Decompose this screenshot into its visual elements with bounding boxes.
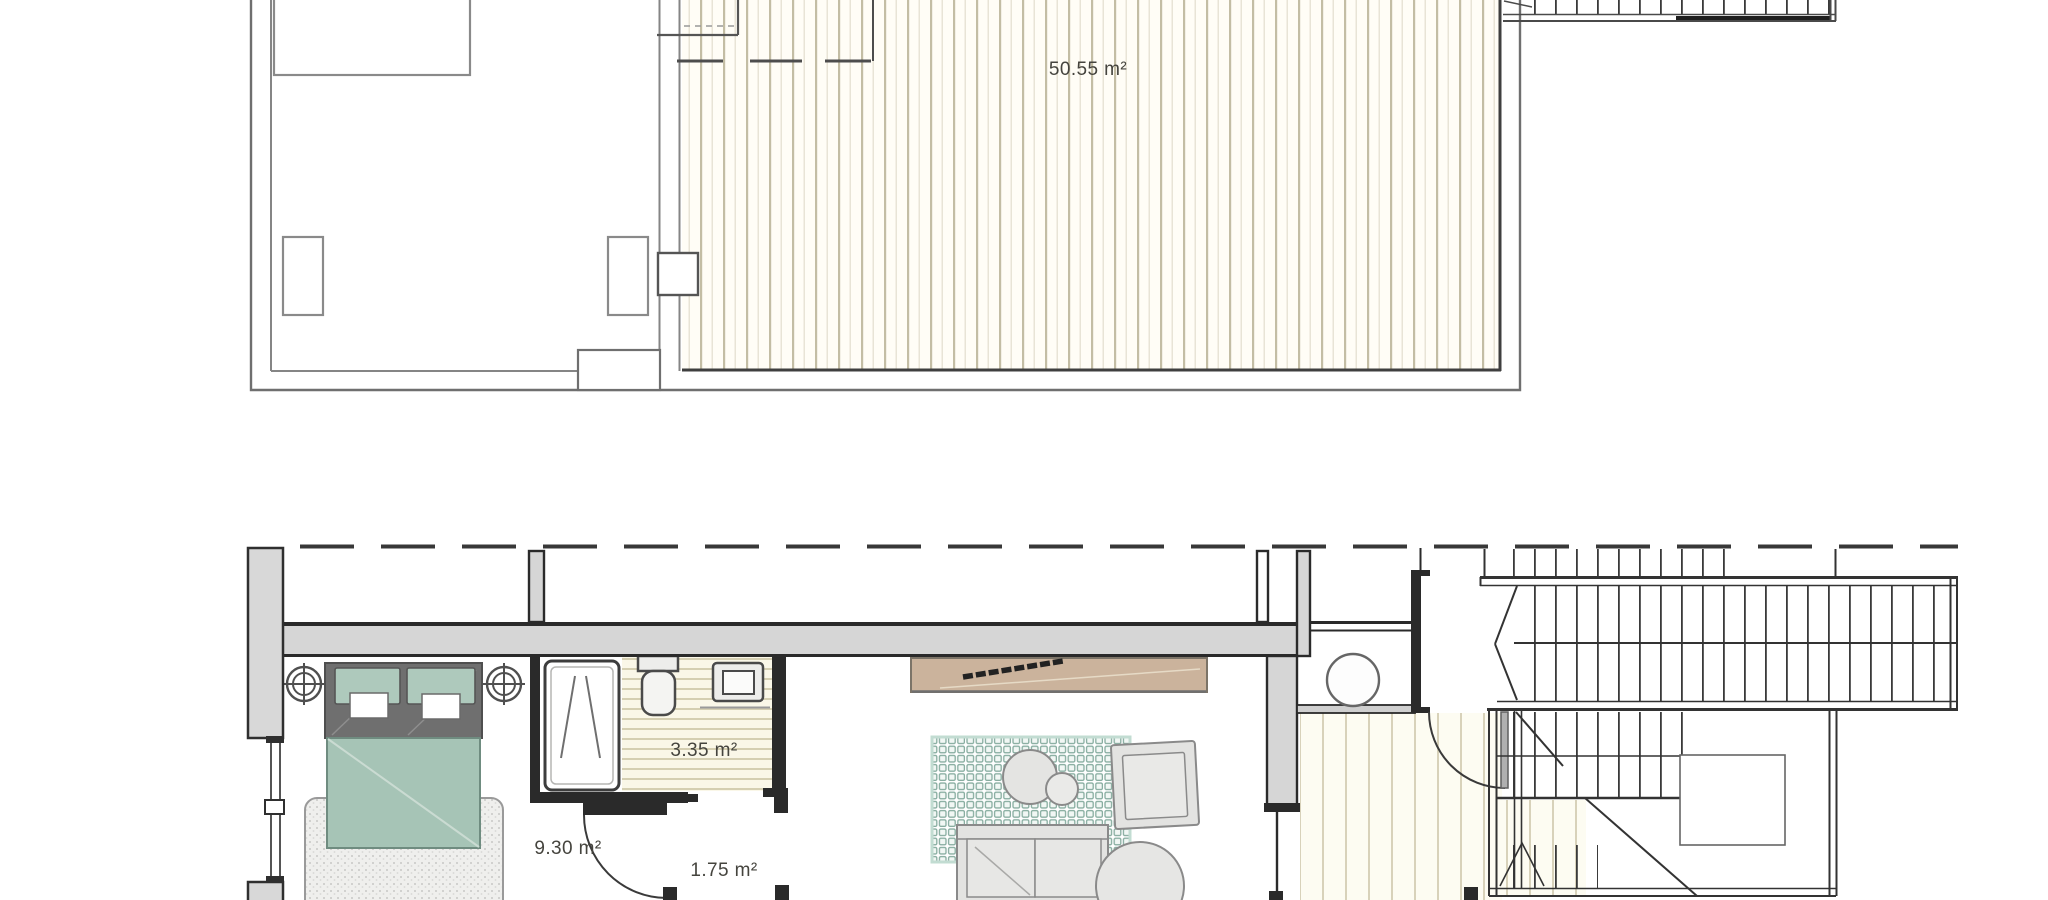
shower <box>545 661 619 790</box>
bathroom-area-label: 3.35 m² <box>670 740 737 762</box>
bedroom-area-label: 9.30 m² <box>534 838 601 860</box>
wall-stub-1 <box>529 551 544 622</box>
stair-lower-flight-treads <box>1513 712 1683 798</box>
utility-closet <box>1297 654 1415 713</box>
main-wall-band <box>280 623 1412 656</box>
wall-pier-block <box>578 350 660 390</box>
light-fixture-symbol-right <box>483 663 525 705</box>
stair-landing <box>1680 755 1785 845</box>
upper-room-furniture <box>274 0 470 75</box>
wall-stub-3 <box>1297 551 1310 656</box>
bedroom-right-wall <box>530 656 540 795</box>
hallway-floor-hatch <box>1300 713 1502 900</box>
wall-stub-2 <box>1257 551 1268 622</box>
hallway-area-label: 1.75 m² <box>690 860 757 882</box>
double-bed <box>325 663 482 848</box>
radiator-right <box>608 237 648 315</box>
entry-door-frame-wall <box>1411 570 1430 713</box>
coffee-table-small <box>1046 773 1078 805</box>
lower-floor-plan <box>248 547 1958 900</box>
armchair <box>1111 741 1199 829</box>
living-room-east-wall <box>1264 656 1300 900</box>
sofa <box>957 825 1108 900</box>
floor-plan-drawing <box>0 0 2048 900</box>
water-heater <box>1327 654 1379 706</box>
bathroom-south-wall <box>530 792 698 803</box>
left-exterior-wall <box>248 548 284 900</box>
terrace-area-label: 50.55 m² <box>1049 59 1127 81</box>
terrace-deck-hatch <box>682 0 1499 370</box>
entry-door-leaf <box>1501 712 1508 788</box>
door-jamb-block <box>658 253 698 295</box>
tv-sideboard <box>911 658 1207 692</box>
upper-stair-strip <box>1503 0 1836 21</box>
toilet <box>638 656 678 715</box>
bedroom-window <box>265 736 284 883</box>
light-fixture-symbol-left <box>283 663 325 705</box>
floor-plan-canvas: 50.55 m² 3.35 m² 9.30 m² 1.75 m² <box>0 0 2048 900</box>
stair-railing-ticks <box>1513 549 1727 577</box>
radiator-left <box>283 237 323 315</box>
upper-floor-plan <box>251 0 1836 390</box>
